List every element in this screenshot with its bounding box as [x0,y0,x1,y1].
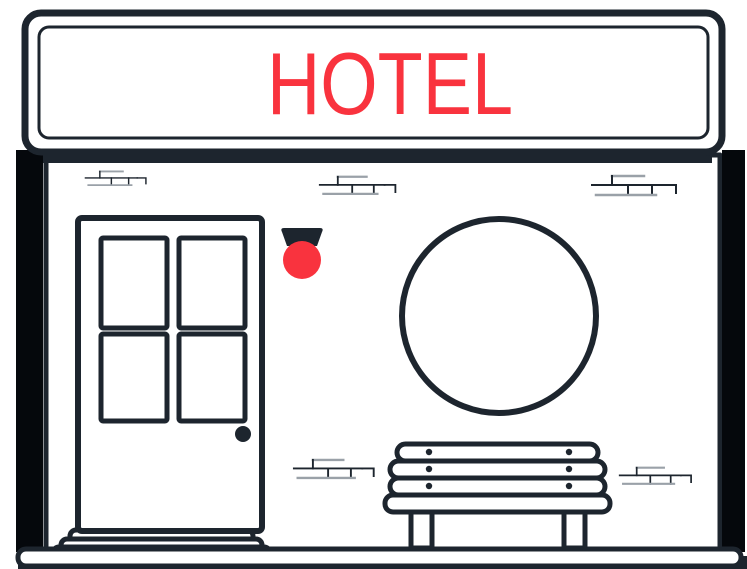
door-pane-bottom-right [179,334,245,421]
bench-leg-left [411,512,432,548]
sign-text: HOTEL [267,34,513,133]
signboard: HOTEL [25,13,722,152]
round-window [402,219,596,413]
sidewalk [18,549,741,566]
bench-slat-middle [390,461,605,478]
right-pillar [722,150,745,552]
door-pane-top-right [179,238,245,328]
door-pane-top-left [101,238,167,328]
bench-seat [385,495,610,512]
left-pillar [16,150,43,552]
entrance-door [78,218,262,531]
hotel-storefront-illustration: HOTEL [0,0,747,569]
lamp-bulb [283,241,321,279]
bench-slat-bottom [390,478,605,495]
bench-leg-right [564,512,585,548]
wall-lamp [281,228,322,279]
door-knob [235,426,251,442]
door-pane-bottom-left [101,334,167,421]
